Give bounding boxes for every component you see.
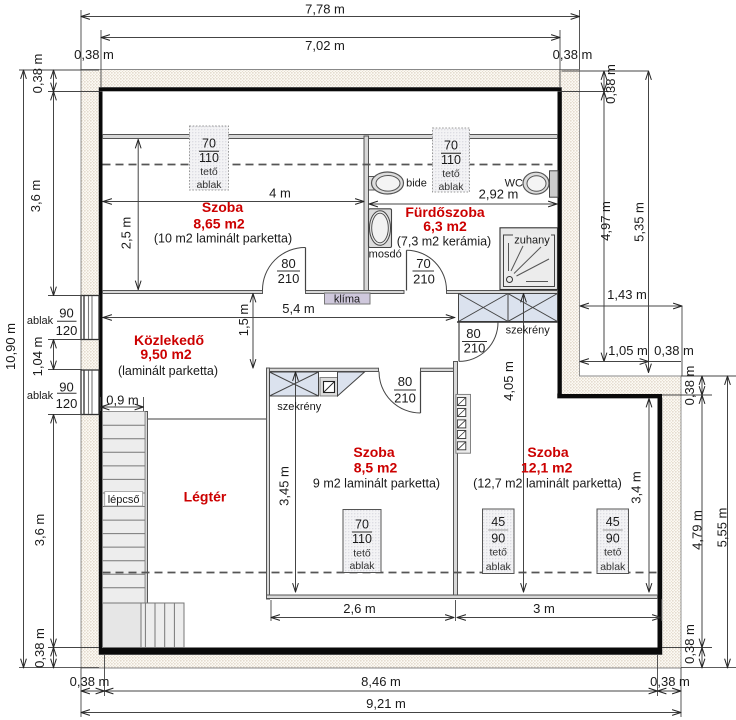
svg-text:3,45 m: 3,45 m	[277, 466, 292, 506]
svg-text:70: 70	[355, 518, 369, 532]
svg-text:110: 110	[352, 532, 372, 546]
svg-text:ablak: ablak	[27, 390, 54, 402]
svg-text:klíma: klíma	[334, 293, 361, 305]
svg-text:90: 90	[59, 306, 73, 321]
svg-text:120: 120	[56, 396, 78, 411]
svg-text:szekrény: szekrény	[506, 325, 551, 337]
svg-text:120: 120	[56, 323, 78, 338]
svg-text:tető: tető	[604, 547, 622, 559]
svg-text:2,5 m: 2,5 m	[119, 217, 134, 250]
svg-text:0,38 m: 0,38 m	[70, 674, 110, 689]
svg-text:90: 90	[606, 532, 620, 546]
svg-text:8,46 m: 8,46 m	[361, 674, 401, 689]
svg-text:90: 90	[491, 532, 505, 546]
svg-text:8,65 m2: 8,65 m2	[193, 216, 245, 232]
svg-text:210: 210	[464, 341, 486, 356]
svg-text:70: 70	[202, 137, 216, 151]
svg-text:110: 110	[199, 151, 219, 165]
svg-text:(7,3 m2 kerámia): (7,3 m2 kerámia)	[397, 235, 491, 249]
svg-text:210: 210	[394, 391, 416, 406]
svg-text:1,05 m: 1,05 m	[608, 343, 648, 358]
svg-text:Légtér: Légtér	[184, 489, 227, 505]
svg-text:0,38 m: 0,38 m	[654, 343, 694, 358]
svg-text:45: 45	[491, 515, 505, 529]
svg-text:80: 80	[466, 326, 480, 341]
svg-text:0,38 m: 0,38 m	[682, 624, 697, 664]
svg-text:1,04 m: 1,04 m	[30, 337, 45, 377]
svg-text:90: 90	[59, 380, 73, 395]
svg-text:tető: tető	[489, 547, 507, 559]
svg-text:(10 m2 laminált parketta): (10 m2 laminált parketta)	[154, 232, 292, 246]
svg-text:mosdó: mosdó	[369, 249, 402, 261]
svg-text:12,1 m2: 12,1 m2	[521, 460, 573, 476]
svg-text:3 m: 3 m	[533, 601, 555, 616]
svg-text:tető: tető	[353, 548, 371, 560]
svg-text:210: 210	[413, 272, 435, 287]
svg-text:10,90 m: 10,90 m	[3, 323, 18, 370]
svg-text:0,38 m: 0,38 m	[650, 674, 690, 689]
svg-text:0,38 m: 0,38 m	[682, 366, 697, 406]
svg-text:4,79 m: 4,79 m	[690, 510, 705, 550]
svg-text:ablak: ablak	[196, 179, 222, 191]
svg-text:lépcső: lépcső	[108, 494, 140, 506]
svg-text:0,38 m: 0,38 m	[32, 628, 47, 668]
svg-text:WC: WC	[505, 178, 523, 190]
svg-text:9,21 m: 9,21 m	[366, 696, 406, 711]
svg-text:7,78 m: 7,78 m	[305, 2, 345, 17]
svg-text:ablak: ablak	[600, 561, 626, 573]
svg-text:4 m: 4 m	[269, 186, 291, 201]
svg-text:45: 45	[606, 515, 620, 529]
svg-text:ablak: ablak	[349, 560, 375, 572]
svg-text:4,05 m: 4,05 m	[501, 361, 516, 401]
svg-text:Szoba: Szoba	[527, 444, 568, 460]
svg-text:2,6 m: 2,6 m	[343, 601, 376, 616]
svg-text:1,5 m: 1,5 m	[236, 304, 251, 337]
svg-text:8,5 m2: 8,5 m2	[354, 460, 398, 476]
svg-text:0,38 m: 0,38 m	[74, 47, 114, 62]
svg-text:ablak: ablak	[486, 561, 512, 573]
svg-text:ablak: ablak	[27, 315, 54, 327]
svg-text:3,6 m: 3,6 m	[32, 514, 47, 547]
svg-text:zuhany: zuhany	[514, 235, 550, 247]
svg-text:80: 80	[398, 374, 412, 389]
svg-text:tető: tető	[200, 166, 218, 178]
svg-text:1,43 m: 1,43 m	[607, 287, 647, 302]
svg-text:0,9 m: 0,9 m	[106, 393, 139, 408]
svg-text:Szoba: Szoba	[353, 444, 394, 460]
svg-text:4,97 m: 4,97 m	[598, 201, 613, 241]
svg-text:0,38 m: 0,38 m	[603, 64, 618, 104]
svg-text:0,38 m: 0,38 m	[30, 54, 45, 94]
svg-text:7,02 m: 7,02 m	[305, 38, 345, 53]
svg-text:Szoba: Szoba	[202, 199, 243, 215]
svg-text:szekrény: szekrény	[277, 401, 322, 413]
svg-text:bide: bide	[406, 178, 427, 190]
svg-text:5,55 m: 5,55 m	[715, 508, 730, 548]
svg-text:110: 110	[441, 153, 461, 167]
svg-text:5,4 m: 5,4 m	[282, 301, 315, 316]
svg-text:3,4 m: 3,4 m	[629, 471, 644, 504]
svg-text:9 m2 laminált parketta): 9 m2 laminált parketta)	[313, 477, 440, 491]
svg-text:0,38 m: 0,38 m	[553, 47, 593, 62]
svg-text:(12,7 m2 laminált parketta): (12,7 m2 laminált parketta)	[473, 477, 622, 491]
svg-text:70: 70	[444, 139, 458, 153]
svg-text:6,3 m2: 6,3 m2	[423, 218, 467, 234]
svg-text:80: 80	[281, 256, 295, 271]
svg-text:(laminált parketta): (laminált parketta)	[118, 364, 218, 378]
svg-text:70: 70	[416, 256, 430, 271]
svg-text:ablak: ablak	[438, 181, 464, 193]
svg-text:210: 210	[278, 271, 300, 286]
svg-text:tető: tető	[442, 168, 460, 180]
svg-text:9,50 m2: 9,50 m2	[140, 346, 192, 362]
svg-text:3,6 m: 3,6 m	[28, 180, 43, 213]
svg-text:5,35 m: 5,35 m	[632, 202, 647, 242]
